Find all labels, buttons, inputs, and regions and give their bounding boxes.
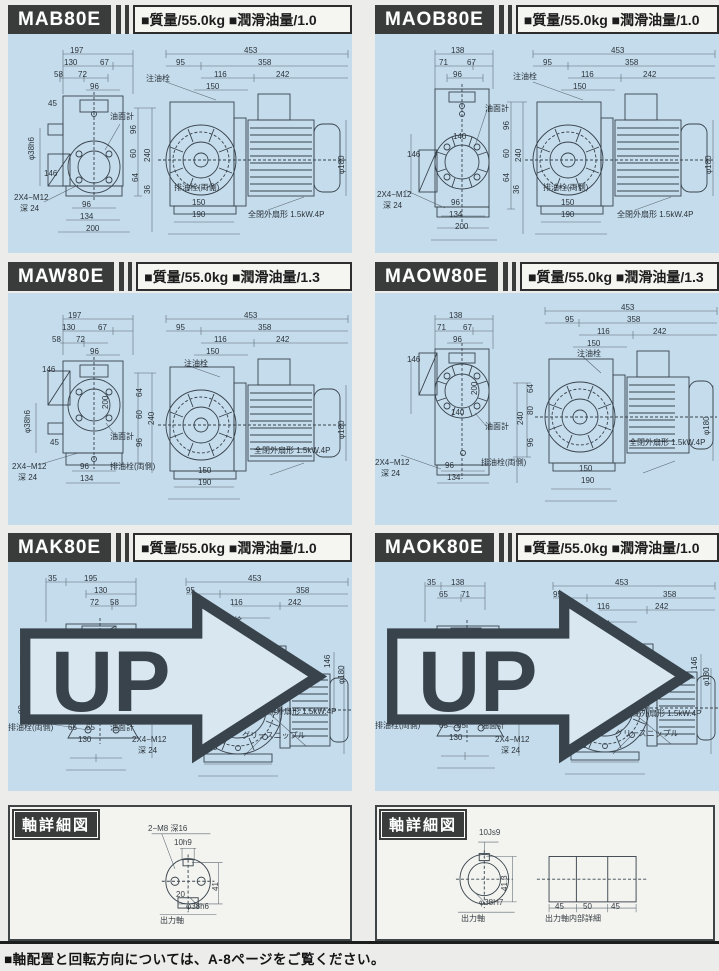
- dimension-label: 油面計: [110, 433, 134, 441]
- catalog-page: MAB80E ■質量/55.0kg ■潤滑油量/1.0: [0, 0, 719, 971]
- dimension-label: φ38h6: [186, 903, 209, 911]
- dimension-label: 96: [136, 438, 144, 447]
- header-divider: [116, 533, 129, 562]
- dimension-label: 出力軸: [160, 917, 184, 925]
- panel-maok80e: MAOK80E ■質量/55.0kg ■潤滑油量/1.0: [375, 533, 719, 791]
- dimension-label: φ38H7: [479, 899, 503, 907]
- dimension-label: 深 24: [383, 202, 402, 210]
- dimension-label: 64: [527, 384, 535, 393]
- dimension-label: 64: [503, 173, 511, 182]
- dimension-label: 134: [447, 474, 460, 482]
- dimension-label: 116: [597, 328, 610, 336]
- dimension-label: 64: [136, 388, 144, 397]
- header-divider: [116, 5, 129, 34]
- dimension-label: 2X4−M12: [375, 459, 409, 467]
- dimension-label: 深 24: [381, 470, 400, 478]
- panel-maw80e: MAW80E ■質量/55.0kg ■潤滑油量/1.3: [8, 262, 352, 525]
- dimension-label: 96: [453, 336, 462, 344]
- dimension-label: 240: [515, 149, 523, 162]
- dimension-label: 60: [130, 149, 138, 158]
- dimension-label: 45: [50, 439, 59, 447]
- up-arrow-badge: UP: [375, 562, 719, 791]
- dimension-label: 全閉外扇形 1.5kW.4P: [254, 447, 330, 455]
- dimension-label: 242: [653, 328, 666, 336]
- dimension-label: 41: [212, 882, 220, 891]
- dimension-label: 72: [76, 336, 85, 344]
- dimension-label: 2−M8 深16: [148, 825, 187, 833]
- dimension-label: 排油栓(両側): [174, 184, 219, 192]
- dimension-label: φ180: [338, 155, 346, 174]
- dimension-label: 45: [611, 903, 620, 911]
- footer-rule: [0, 941, 719, 944]
- dimension-label: 67: [98, 324, 107, 332]
- dimension-label: 150: [587, 340, 600, 348]
- dimension-label: 116: [214, 336, 227, 344]
- shaft-detail-panel-right: 軸詳細図 10Js941.3φ38H7出力軸455045出力軸内部詳細: [375, 805, 715, 941]
- dimension-label: 20: [176, 891, 185, 899]
- drawing-area: 138716796注油栓油面計1401462X4−M12深 2496134200…: [375, 34, 719, 253]
- panel-header: MAK80E ■質量/55.0kg ■潤滑油量/1.0: [8, 533, 352, 562]
- drawing-area: 19713067587296146φ38h645200油面計2X4−M12深 2…: [8, 293, 352, 525]
- dimension-label: 96: [453, 71, 462, 79]
- dimension-label: 146: [407, 356, 420, 364]
- dimension-label: 116: [581, 71, 594, 79]
- shaft-detail-panel-left: 軸詳細図 2−M8 深1610h94120φ38h6出力軸: [8, 805, 352, 941]
- dimension-label: 96: [80, 463, 89, 471]
- dimension-label: 96: [90, 348, 99, 356]
- dimension-label: 80: [527, 406, 535, 415]
- model-badge: MAOB80E: [375, 5, 494, 34]
- dimension-label: 138: [449, 312, 462, 320]
- dimension-label: 200: [102, 396, 110, 409]
- dimension-label: 注油栓: [513, 73, 537, 81]
- dimension-label: 453: [244, 312, 257, 320]
- spec-box: ■質量/55.0kg ■潤滑油量/1.0: [516, 5, 719, 34]
- model-badge: MAK80E: [8, 533, 111, 562]
- dimension-label: 64: [132, 173, 140, 182]
- dimension-label: 96: [503, 121, 511, 130]
- dimension-label: 453: [611, 47, 624, 55]
- panel-header: MAOB80E ■質量/55.0kg ■潤滑油量/1.0: [375, 5, 719, 34]
- dimension-label: 2X4−M12: [14, 194, 48, 202]
- dimension-label: 71: [437, 324, 446, 332]
- dimension-label: 358: [627, 316, 640, 324]
- dimension-label: 油面計: [485, 423, 509, 431]
- dimension-label: 197: [68, 312, 81, 320]
- panel-header: MAOW80E ■質量/55.0kg ■潤滑油量/1.3: [375, 262, 719, 291]
- dimension-label: 油面計: [110, 113, 134, 121]
- header-divider: [499, 5, 512, 34]
- dimension-label: 146: [44, 170, 57, 178]
- dimension-label: 2X4−M12: [12, 463, 46, 471]
- dimension-label: 150: [192, 199, 205, 207]
- dimension-label: 240: [148, 412, 156, 425]
- dimension-label: 96: [82, 201, 91, 209]
- dimension-label: 36: [513, 185, 521, 194]
- dimension-label: 10Js9: [479, 829, 500, 837]
- dimension-label: 150: [206, 348, 219, 356]
- dimension-label: 150: [573, 83, 586, 91]
- dimension-label: 190: [581, 477, 594, 485]
- panel-mab80e: MAB80E ■質量/55.0kg ■潤滑油量/1.0: [8, 5, 352, 253]
- dimension-label: 200: [471, 382, 479, 395]
- dimension-label: φ180: [705, 155, 713, 174]
- dimension-label: 96: [445, 462, 454, 470]
- dimension-label: 453: [621, 304, 634, 312]
- dimension-label: 240: [517, 412, 525, 425]
- dimension-label: 138: [451, 47, 464, 55]
- dimension-label: 注油栓: [577, 350, 601, 358]
- panel-header: MAW80E ■質量/55.0kg ■潤滑油量/1.3: [8, 262, 352, 291]
- dimension-label: 200: [455, 223, 468, 231]
- footer-note: ■軸配置と回転方向については、A-8ページをご覧ください。: [4, 948, 385, 968]
- model-badge: MAOW80E: [375, 262, 498, 291]
- dimension-label: 242: [276, 71, 289, 79]
- dimension-label: φ180: [338, 420, 346, 439]
- spec-box: ■質量/55.0kg ■潤滑油量/1.0: [133, 5, 352, 34]
- dimension-label: 146: [407, 151, 420, 159]
- header-divider: [499, 533, 512, 562]
- dimension-label: 深 24: [18, 474, 37, 482]
- dimension-label: 全閉外扇形 1.5kW.4P: [248, 211, 324, 219]
- dimension-label: 134: [80, 475, 93, 483]
- dimension-label: φ38h6: [28, 137, 36, 160]
- dimension-label: 60: [136, 410, 144, 419]
- dimension-label: 96: [527, 438, 535, 447]
- dimension-label: 排油栓(両側): [110, 463, 155, 471]
- spec-box: ■質量/55.0kg ■潤滑油量/1.0: [516, 533, 719, 562]
- dimension-label: 358: [258, 324, 271, 332]
- dimension-label: 注油栓: [184, 360, 208, 368]
- drawing-area: 351951307258662008090φ38h645排油栓(両側)65651…: [8, 562, 352, 791]
- spec-box: ■質量/55.0kg ■潤滑油量/1.3: [136, 262, 352, 291]
- model-badge: MAW80E: [8, 262, 114, 291]
- dimension-label: 242: [276, 336, 289, 344]
- dimension-label: 96: [90, 83, 99, 91]
- dimension-label: 190: [192, 211, 205, 219]
- dimension-label: 67: [100, 59, 109, 67]
- dimension-label: 197: [70, 47, 83, 55]
- dimension-label: 150: [206, 83, 219, 91]
- dimension-label: 50: [583, 903, 592, 911]
- dimension-label: φ180: [703, 416, 711, 435]
- dimension-label: 排油栓(両側): [481, 459, 526, 467]
- dimension-label: 95: [543, 59, 552, 67]
- dimension-label: 45: [555, 903, 564, 911]
- dimension-label: 130: [62, 324, 75, 332]
- drawing-area: 351386571662008090140排油栓(両側)6565130油面計24…: [375, 562, 719, 791]
- dimension-label: 358: [258, 59, 271, 67]
- dimension-label: 71: [439, 59, 448, 67]
- dimension-label: 72: [78, 71, 87, 79]
- dimension-label: 200: [86, 225, 99, 233]
- dimension-label: 67: [463, 324, 472, 332]
- model-badge: MAOK80E: [375, 533, 494, 562]
- dimension-label: 453: [244, 47, 257, 55]
- dimension-label: 全閉外扇形 1.5kW.4P: [629, 439, 705, 447]
- dimension-label: 146: [42, 366, 55, 374]
- dimension-label: 41.3: [501, 875, 509, 891]
- dimension-label: 36: [144, 185, 152, 194]
- panel-mak80e: MAK80E ■質量/55.0kg ■潤滑油量/1.0: [8, 533, 352, 791]
- dimension-label: 95: [176, 324, 185, 332]
- panel-header: MAOK80E ■質量/55.0kg ■潤滑油量/1.0: [375, 533, 719, 562]
- dimension-label: 58: [54, 71, 63, 79]
- drawing-area: 19713067587296注油栓45油面計φ38h61462X4−M12深 2…: [8, 34, 352, 253]
- dimension-label: 190: [561, 211, 574, 219]
- spec-box: ■質量/55.0kg ■潤滑油量/1.0: [133, 533, 352, 562]
- dimension-label: 出力軸: [461, 915, 485, 923]
- spec-box: ■質量/55.0kg ■潤滑油量/1.3: [520, 262, 719, 291]
- dimension-label: 深 24: [20, 205, 39, 213]
- dimension-label: 96: [451, 199, 460, 207]
- dimension-label: 95: [176, 59, 185, 67]
- dimension-label: 58: [52, 336, 61, 344]
- dimension-label: 134: [80, 213, 93, 221]
- model-badge: MAB80E: [8, 5, 111, 34]
- dimension-label: 150: [198, 467, 211, 475]
- dimension-label: 95: [565, 316, 574, 324]
- dimension-label: 140: [453, 133, 466, 141]
- dimension-label: 358: [625, 59, 638, 67]
- dimension-label: 150: [579, 465, 592, 473]
- dimension-label: 130: [64, 59, 77, 67]
- dimension-label: 140: [451, 409, 464, 417]
- header-divider: [503, 262, 516, 291]
- dimension-label: 2X4−M12: [377, 191, 411, 199]
- dimension-label: 96: [130, 125, 138, 134]
- dimension-label: 150: [561, 199, 574, 207]
- dimension-label: 134: [449, 211, 462, 219]
- dimension-label: 116: [214, 71, 227, 79]
- svg-text:UP: UP: [418, 634, 537, 730]
- up-arrow-badge: UP: [8, 562, 352, 791]
- dimension-label: 注油栓: [146, 75, 170, 83]
- dimension-label: 出力軸内部詳細: [545, 915, 601, 923]
- dimension-label: 油面計: [485, 105, 509, 113]
- dimension-drawing: [375, 293, 719, 525]
- dimension-label: 全閉外扇形 1.5kW.4P: [617, 211, 693, 219]
- panel-maow80e: MAOW80E ■質量/55.0kg ■潤滑油量/1.3: [375, 262, 719, 525]
- dimension-label: 190: [198, 479, 211, 487]
- dimension-label: φ38h6: [24, 410, 32, 433]
- dimension-label: 240: [144, 149, 152, 162]
- dimension-label: 67: [467, 59, 476, 67]
- svg-text:UP: UP: [51, 634, 170, 730]
- dimension-label: 60: [503, 149, 511, 158]
- header-divider: [119, 262, 132, 291]
- dimension-label: 242: [643, 71, 656, 79]
- dimension-label: 排油栓(両側): [543, 184, 588, 192]
- dimension-label: 45: [48, 100, 57, 108]
- dimension-label: 10h9: [174, 839, 192, 847]
- panel-header: MAB80E ■質量/55.0kg ■潤滑油量/1.0: [8, 5, 352, 34]
- panel-maob80e: MAOB80E ■質量/55.0kg ■潤滑油量/1.0: [375, 5, 719, 253]
- drawing-area: 138716796146200140油面計2X4−M12深 2496134排油栓…: [375, 293, 719, 525]
